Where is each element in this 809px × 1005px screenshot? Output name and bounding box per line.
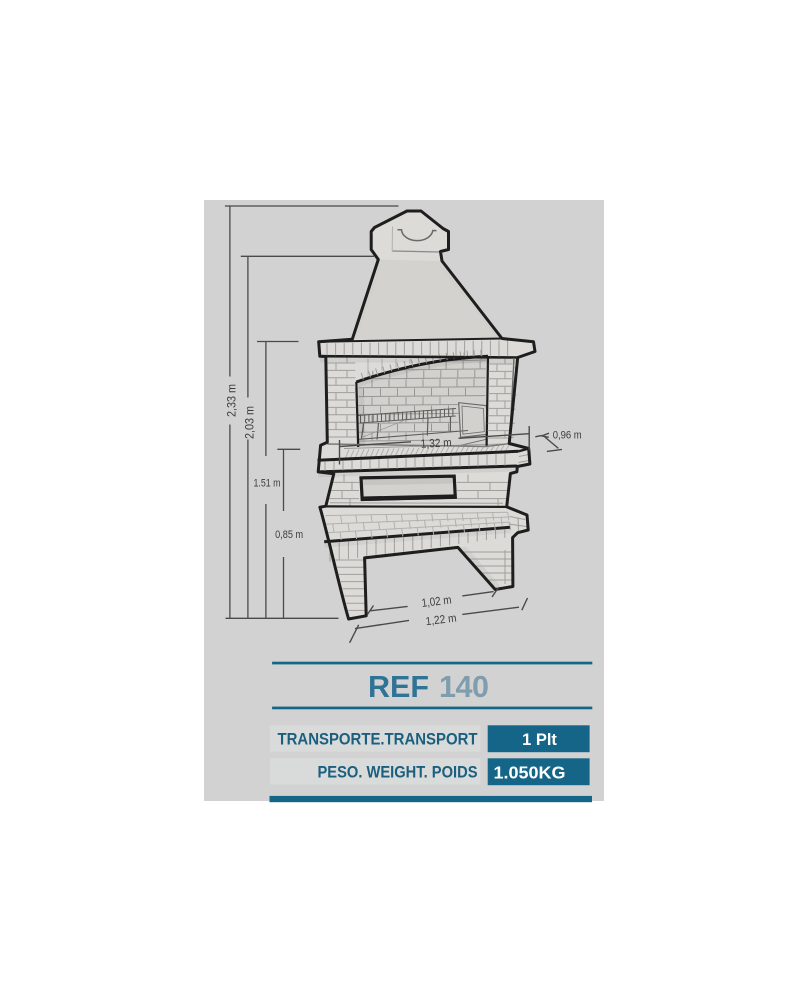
svg-text:0,85 m: 0,85 m bbox=[275, 529, 303, 541]
svg-text:1 Plt: 1 Plt bbox=[522, 731, 557, 749]
svg-text:1.050KG: 1.050KG bbox=[494, 763, 566, 783]
svg-text:2,03 m: 2,03 m bbox=[245, 406, 257, 439]
svg-text:REF: REF bbox=[368, 670, 429, 704]
svg-text:1,32 m: 1,32 m bbox=[420, 435, 452, 451]
svg-text:PESO. WEIGHT. POIDS: PESO. WEIGHT. POIDS bbox=[318, 764, 478, 782]
svg-text:2,33 m: 2,33 m bbox=[226, 384, 238, 417]
svg-text:140: 140 bbox=[439, 670, 489, 704]
svg-text:0,96 m: 0,96 m bbox=[553, 430, 582, 442]
svg-text:TRANSPORTE.TRANSPORT: TRANSPORTE.TRANSPORT bbox=[278, 731, 478, 749]
svg-text:1.51 m: 1.51 m bbox=[254, 477, 281, 489]
